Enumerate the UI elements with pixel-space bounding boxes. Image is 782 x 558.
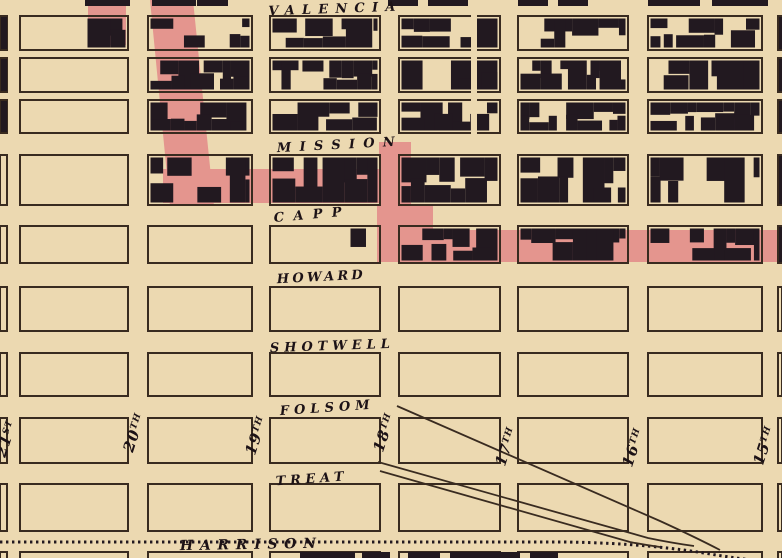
mid-block-alley [471, 14, 477, 135]
historic-map-canvas: VALENCIAMISSIONCAPPHOWARDSHOTWELLFOLSOMT… [0, 0, 782, 558]
map-viewport: VALENCIAMISSIONCAPPHOWARDSHOTWELLFOLSOMT… [0, 0, 782, 558]
